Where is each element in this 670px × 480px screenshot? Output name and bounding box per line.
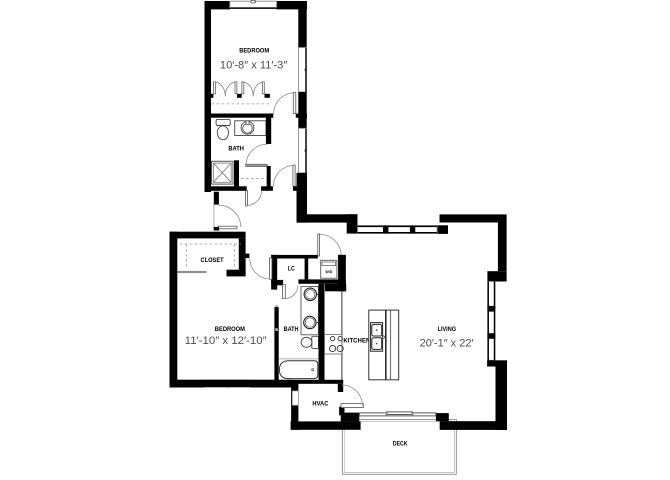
svg-text:DECK: DECK <box>393 440 408 447</box>
svg-text:CLOSET: CLOSET <box>201 257 225 264</box>
svg-text:BEDROOM: BEDROOM <box>215 326 245 333</box>
svg-text:KITCHEN: KITCHEN <box>343 337 370 344</box>
svg-text:BATH: BATH <box>228 146 244 153</box>
svg-text:11′-10″ x 12′-10″: 11′-10″ x 12′-10″ <box>185 335 267 347</box>
svg-text:W/D: W/D <box>325 270 332 274</box>
svg-text:LIVING: LIVING <box>438 326 456 333</box>
svg-text:10′-8″ x 11′-3″: 10′-8″ x 11′-3″ <box>220 59 287 71</box>
svg-text:20′-1″ x 22′: 20′-1″ x 22′ <box>420 338 474 350</box>
svg-text:BEDROOM: BEDROOM <box>239 48 269 55</box>
svg-text:HVAC: HVAC <box>312 400 328 407</box>
svg-text:LC: LC <box>288 265 295 272</box>
svg-text:BATH: BATH <box>284 326 299 333</box>
